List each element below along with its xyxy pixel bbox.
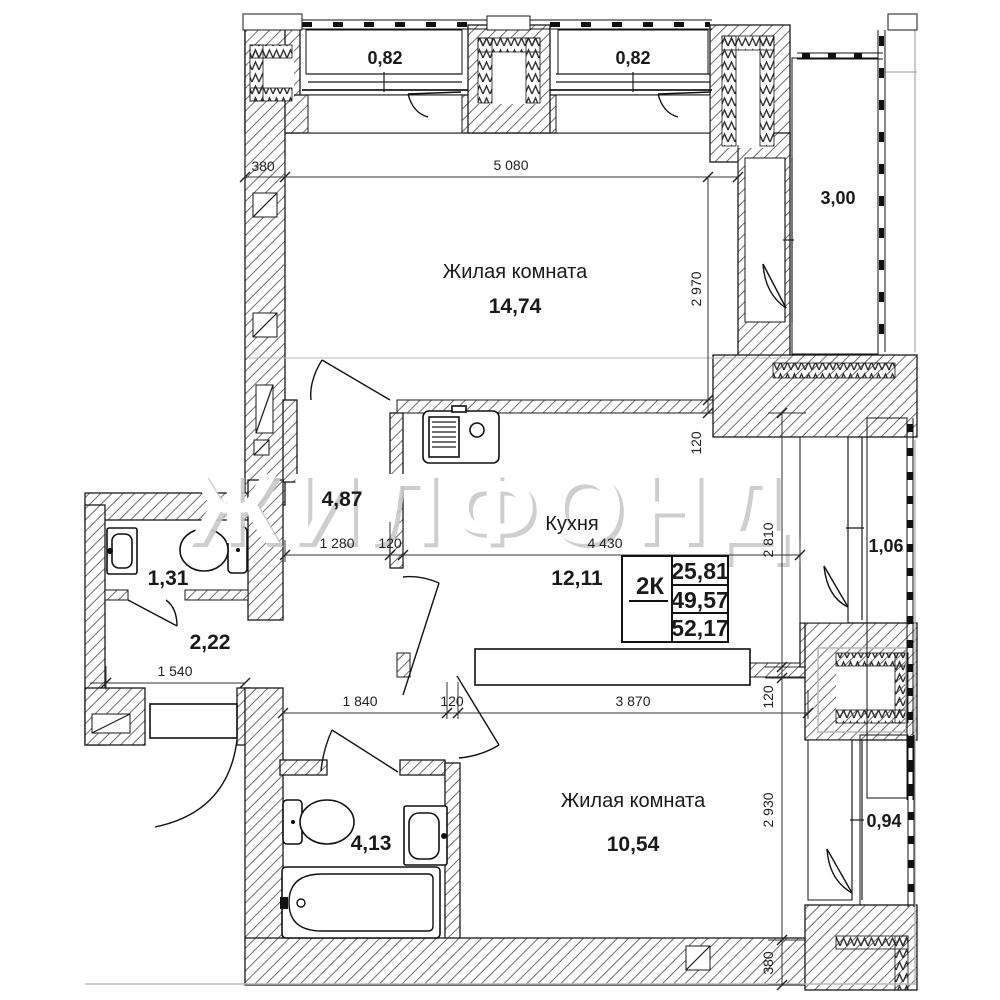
window-living2 <box>850 740 864 900</box>
door-kitchen <box>403 577 439 695</box>
room-living1-name: Жилая комната <box>443 261 588 283</box>
dim-120-b: 120 <box>378 535 402 551</box>
window-living1-top <box>302 72 468 92</box>
bath-toilet-symbol <box>283 800 354 844</box>
entrance-door <box>150 704 237 827</box>
bath-sink-symbol <box>404 806 447 865</box>
bathtub-symbol <box>280 867 440 938</box>
window-living1-top2 <box>550 72 712 92</box>
watermark-text: ЖИЛФОНД <box>187 453 797 565</box>
dim-120-c: 120 <box>760 685 776 709</box>
dim-1840: 1 840 <box>342 693 377 709</box>
room-bath-area: 4,13 <box>351 832 392 855</box>
door-living1 <box>311 360 390 400</box>
table-area: 49,57 <box>671 587 729 613</box>
dim-3870: 3 870 <box>615 693 650 709</box>
balcony-4-area: 1,06 <box>868 536 903 556</box>
room-kitchen-area: 12,11 <box>551 567 603 590</box>
room-living2-name: Жилая комната <box>561 790 706 812</box>
balcony-3-area: 3,00 <box>820 188 855 208</box>
dim-380-bottom: 380 <box>760 951 776 975</box>
dim-1540: 1 540 <box>157 663 192 679</box>
room-living2-area: 10,54 <box>607 833 660 856</box>
info-table: 2К 25,81 49,57 52,17 <box>622 556 729 642</box>
room-living1-area: 14,74 <box>489 295 542 318</box>
window-kitchen <box>846 437 864 620</box>
dim-120-a: 120 <box>688 431 704 455</box>
wc-sink-symbol <box>107 528 137 574</box>
table-total-area: 52,17 <box>671 615 729 641</box>
door-bath <box>321 730 398 772</box>
room-kitchen-name: Кухня <box>545 513 599 535</box>
dim-5080: 5 080 <box>493 157 528 173</box>
balcony-5-area: 0,94 <box>866 811 901 831</box>
room-wc-area: 1,31 <box>148 567 189 590</box>
watermark: ЖИЛФОНД ЖИЛФОНД <box>187 453 801 569</box>
dim-380-top: 380 <box>251 158 275 174</box>
door-wc <box>128 600 177 626</box>
dim-4430: 4 430 <box>587 535 622 551</box>
room-hall-area: 4,87 <box>322 488 363 511</box>
kitchen-counter <box>475 649 750 685</box>
balcony-1-area: 0,82 <box>367 48 402 68</box>
dim-2810: 2 810 <box>760 522 776 557</box>
floor-plan-svg: ЖИЛФОНД ЖИЛФОНД 380 5 080 2 970 120 1 28… <box>0 0 1000 1000</box>
floor-plan-page: ЖИЛФОНД ЖИЛФОНД 380 5 080 2 970 120 1 28… <box>0 0 1000 1000</box>
dim-2930: 2 930 <box>760 792 776 827</box>
balcony-2-area: 0,82 <box>615 48 650 68</box>
door-living2 <box>457 676 499 758</box>
table-apartment-type: 2К <box>636 573 664 600</box>
balcony-4-outline <box>867 418 907 798</box>
table-living-area: 25,81 <box>671 558 729 584</box>
room-corridor-area: 2,22 <box>190 631 231 654</box>
dim-120-d: 120 <box>440 693 464 709</box>
dim-1280: 1 280 <box>319 535 354 551</box>
dim-2970: 2 970 <box>688 271 704 306</box>
